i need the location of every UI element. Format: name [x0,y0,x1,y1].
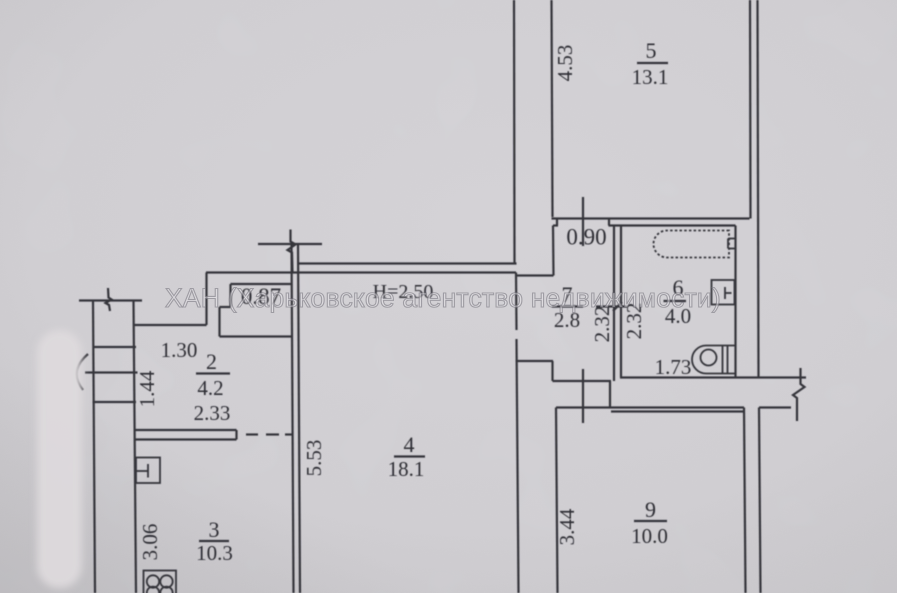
svg-text:3.44: 3.44 [555,508,579,545]
svg-text:10.3: 10.3 [196,541,233,565]
svg-text:10.0: 10.0 [631,524,668,548]
svg-text:18.1: 18.1 [388,457,425,481]
svg-text:5.53: 5.53 [302,440,326,477]
svg-text:3: 3 [209,517,220,542]
svg-text:3.06: 3.06 [138,524,162,561]
svg-text:4.2: 4.2 [197,376,223,400]
svg-text:1.30: 1.30 [161,338,198,362]
svg-text:ХАН (Харьковское агентство нед: ХАН (Харьковское агентство недвижимости) [165,283,721,313]
svg-text:0.90: 0.90 [566,225,606,250]
svg-text:2.33: 2.33 [194,401,231,425]
svg-text:4: 4 [404,432,415,457]
svg-text:4.53: 4.53 [553,45,577,82]
svg-text:1.44: 1.44 [135,370,159,407]
svg-text:5: 5 [646,38,657,63]
svg-text:1.73: 1.73 [655,355,692,379]
svg-text:2: 2 [206,349,217,374]
svg-text:9: 9 [645,497,656,522]
svg-text:13.1: 13.1 [632,65,669,89]
